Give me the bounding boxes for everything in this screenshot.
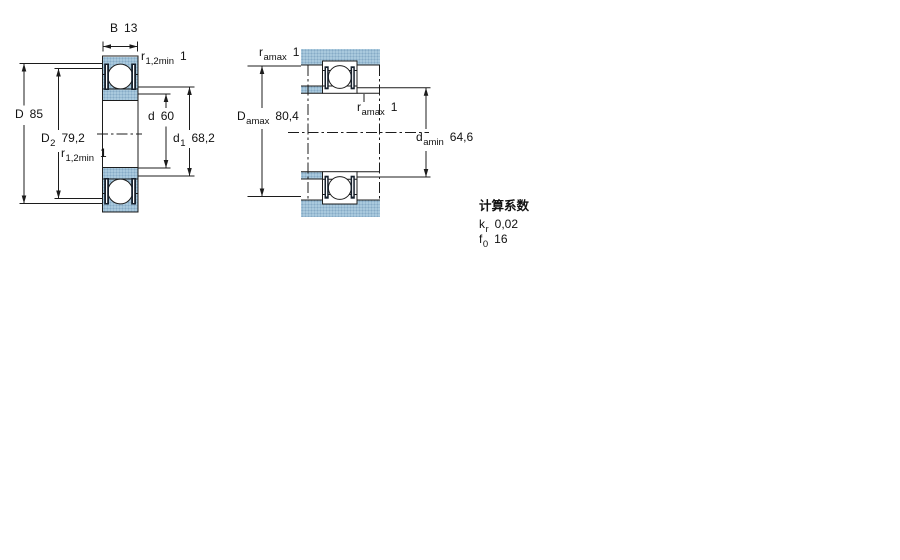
label-outer-diameter-D: D85	[15, 108, 43, 121]
right-bearing-figure	[288, 61, 429, 204]
label-width-B: B13	[110, 22, 137, 35]
ball-top	[328, 66, 351, 89]
label-D-amax: Damax80,4	[237, 110, 299, 123]
label-r-amax-top: ramax1	[259, 46, 299, 59]
label-D2: D279,2	[41, 132, 85, 145]
label-d1: d168,2	[173, 132, 215, 145]
ball-bottom	[328, 177, 351, 200]
drawing-linework	[0, 0, 900, 560]
calc-factors-title: 计算系数	[479, 195, 529, 214]
bearing-dimension-drawing: B13 D85 D279,2 r1,2min1 r1,2min1 d60 d16…	[0, 0, 900, 560]
calc-row-kr: kr0,02	[479, 218, 518, 231]
left-bearing-figure	[97, 56, 142, 212]
label-r-amax-mid: ramax1	[357, 101, 397, 114]
ball-bottom	[108, 179, 133, 204]
label-r12min-bottom: r1,2min1	[61, 147, 107, 160]
label-r12min-top: r1,2min1	[141, 50, 187, 63]
label-d-amin: damin64,6	[416, 131, 473, 144]
ball-top	[108, 64, 133, 89]
label-bore-d: d60	[148, 110, 174, 123]
calc-row-f0: f016	[479, 233, 508, 246]
